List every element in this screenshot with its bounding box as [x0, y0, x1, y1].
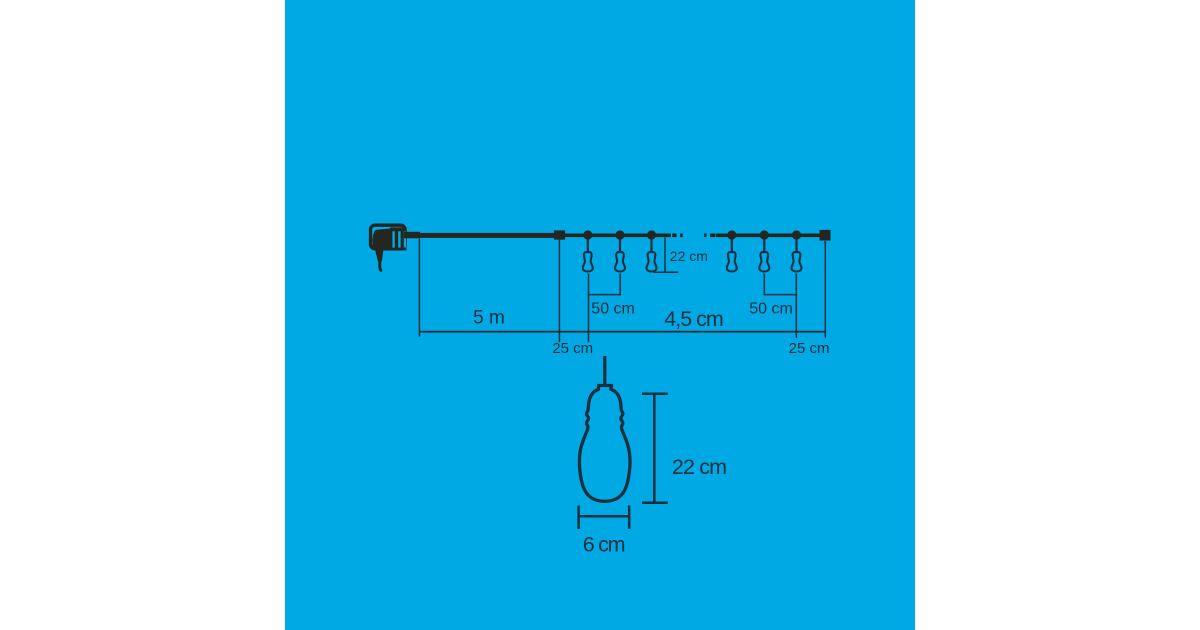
svg-text:25 cm: 25 cm	[789, 340, 830, 357]
svg-text:50 cm: 50 cm	[749, 300, 793, 317]
svg-text:25 cm: 25 cm	[552, 340, 593, 357]
svg-text:22 cm: 22 cm	[672, 455, 726, 479]
svg-text:4,5 cm: 4,5 cm	[664, 307, 723, 331]
svg-text:22 cm: 22 cm	[670, 248, 708, 264]
svg-text:50 cm: 50 cm	[591, 300, 635, 317]
svg-text:5 m: 5 m	[473, 307, 505, 328]
svg-text:6 cm: 6 cm	[583, 532, 625, 556]
